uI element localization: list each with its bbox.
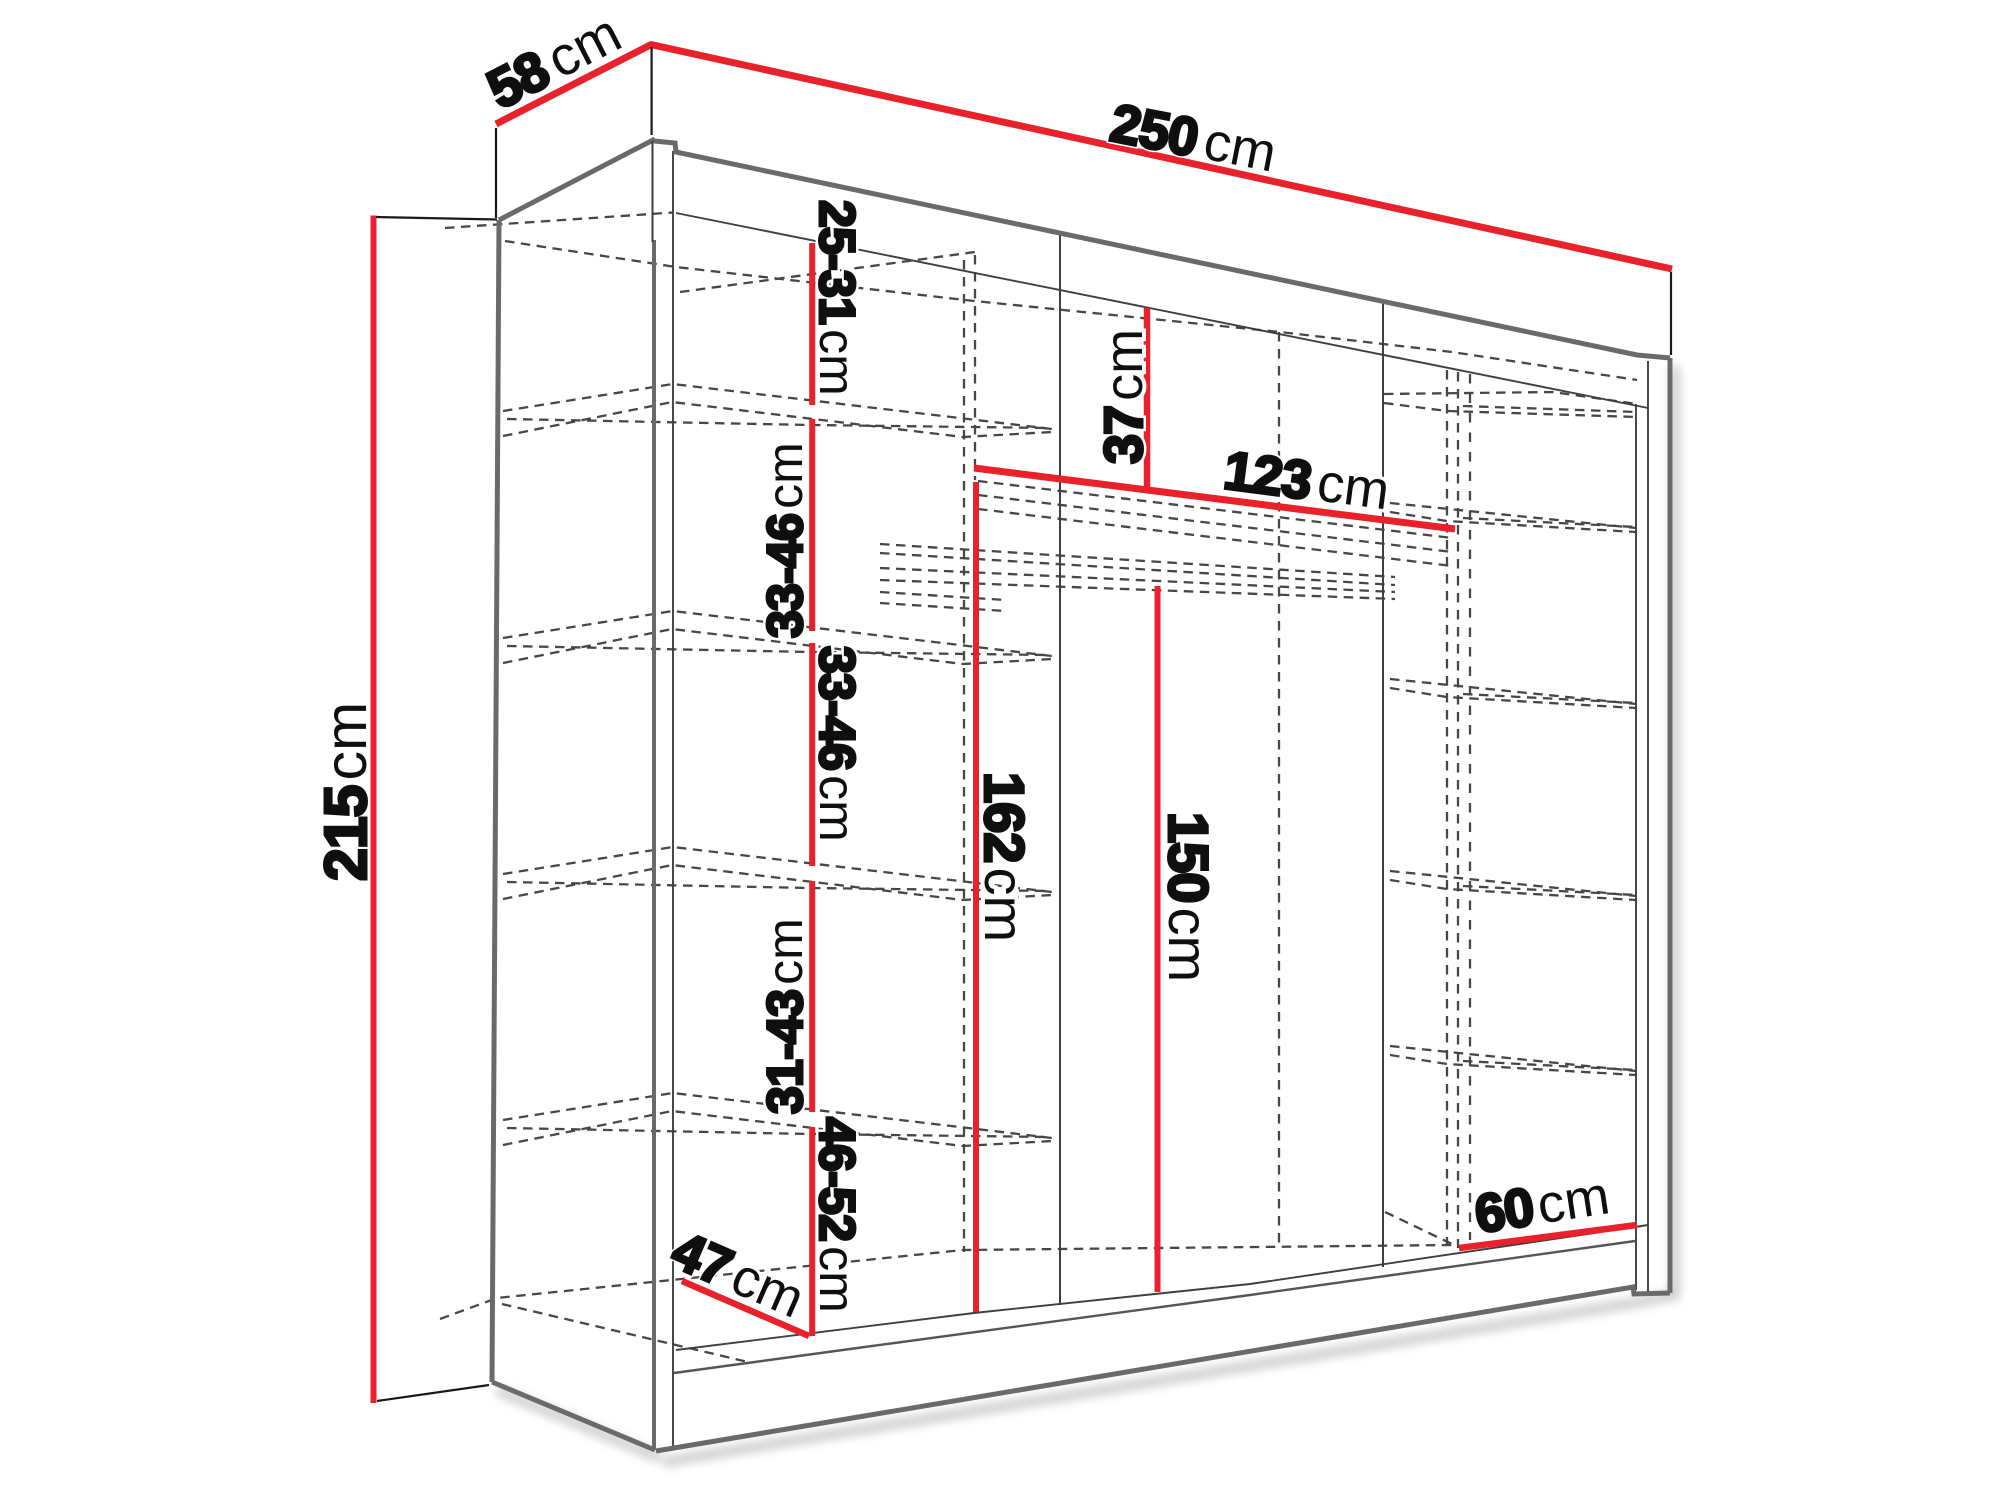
svg-text:46-52cm: 46-52cm [809, 1117, 865, 1313]
svg-text:162cm: 162cm [973, 772, 1036, 942]
svg-text:150cm: 150cm [1157, 812, 1220, 982]
svg-text:33-46cm: 33-46cm [757, 442, 813, 638]
svg-text:37cm: 37cm [1094, 329, 1154, 464]
svg-text:25-31cm: 25-31cm [809, 200, 865, 396]
svg-text:33-46cm: 33-46cm [809, 646, 865, 842]
svg-text:215cm: 215cm [313, 702, 379, 881]
svg-text:31-43cm: 31-43cm [757, 918, 813, 1114]
